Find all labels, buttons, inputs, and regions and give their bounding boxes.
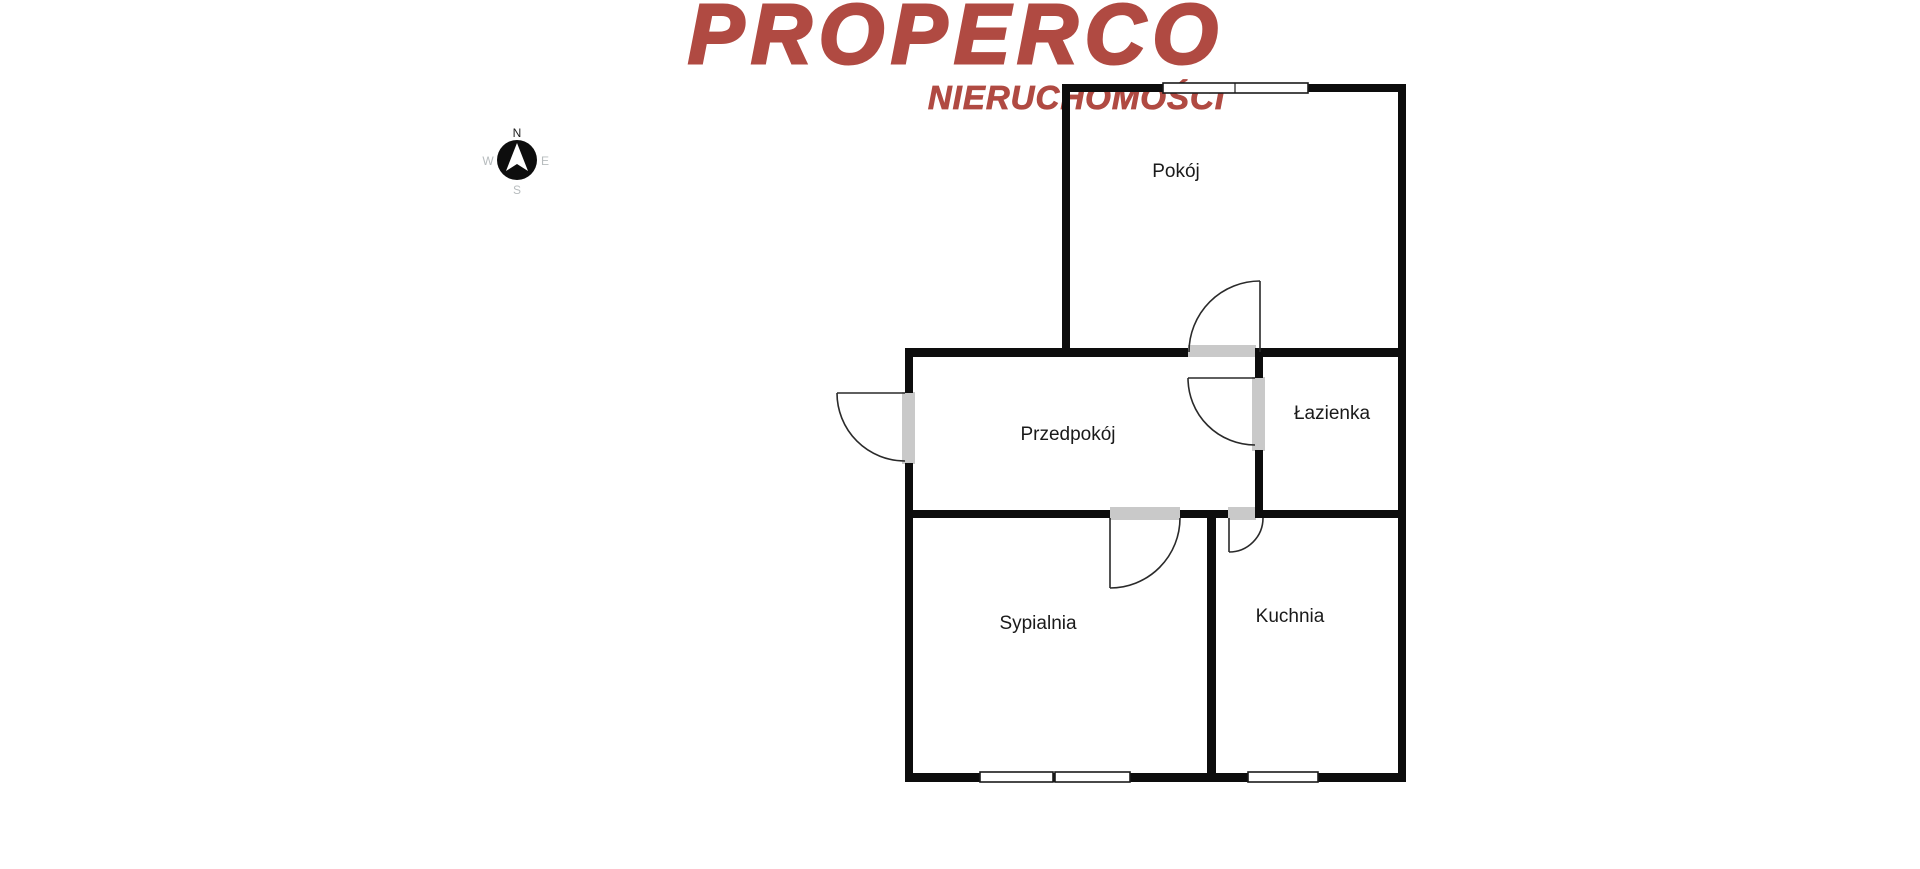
- room-label-przedpokoj: Przedpokój: [1020, 424, 1115, 446]
- wall-lazienka-left-upper: [1255, 348, 1263, 378]
- wall-mid-right-segment: [1256, 348, 1406, 357]
- door-opening-pokoj: [1188, 345, 1256, 357]
- door-opening-sypialnia: [1110, 507, 1180, 520]
- door-arc-kuchnia: [1229, 518, 1263, 552]
- door-arc-pokoj: [1189, 281, 1260, 352]
- door-opening-entry: [902, 392, 915, 464]
- wall-right: [1398, 84, 1406, 782]
- door-arc-entry: [837, 393, 905, 461]
- page: PROPERCO NIERUCHOMOŚCI N E S W: [0, 0, 1920, 869]
- room-label-kuchnia: Kuchnia: [1256, 606, 1325, 628]
- room-label-pokoj: Pokój: [1152, 161, 1200, 183]
- window-sypialnia-right: [1055, 772, 1130, 782]
- wall-lower-segment-2: [1180, 510, 1228, 518]
- wall-lazienka-left-lower: [1255, 450, 1263, 518]
- door-opening-lazienka: [1252, 377, 1265, 451]
- window-sypialnia-left: [980, 772, 1053, 782]
- wall-lower-segment-1: [905, 510, 1110, 518]
- walls: [905, 84, 1406, 782]
- door-arc-lazienka: [1188, 378, 1255, 445]
- door-arc-sypialnia: [1110, 518, 1180, 588]
- wall-lower-segment-3: [1256, 510, 1406, 518]
- room-label-sypialnia: Sypialnia: [999, 613, 1076, 635]
- door-opening-kuchnia: [1228, 507, 1256, 520]
- room-label-lazienka: Łazienka: [1294, 403, 1370, 425]
- window-kuchnia: [1248, 772, 1318, 782]
- wall-mid-left-segment: [905, 348, 1188, 357]
- wall-sypialnia-kuchnia-divider: [1207, 510, 1216, 782]
- wall-pokoj-left: [1062, 84, 1070, 357]
- floor-plan: [0, 0, 1920, 869]
- wall-left-upper: [905, 348, 913, 393]
